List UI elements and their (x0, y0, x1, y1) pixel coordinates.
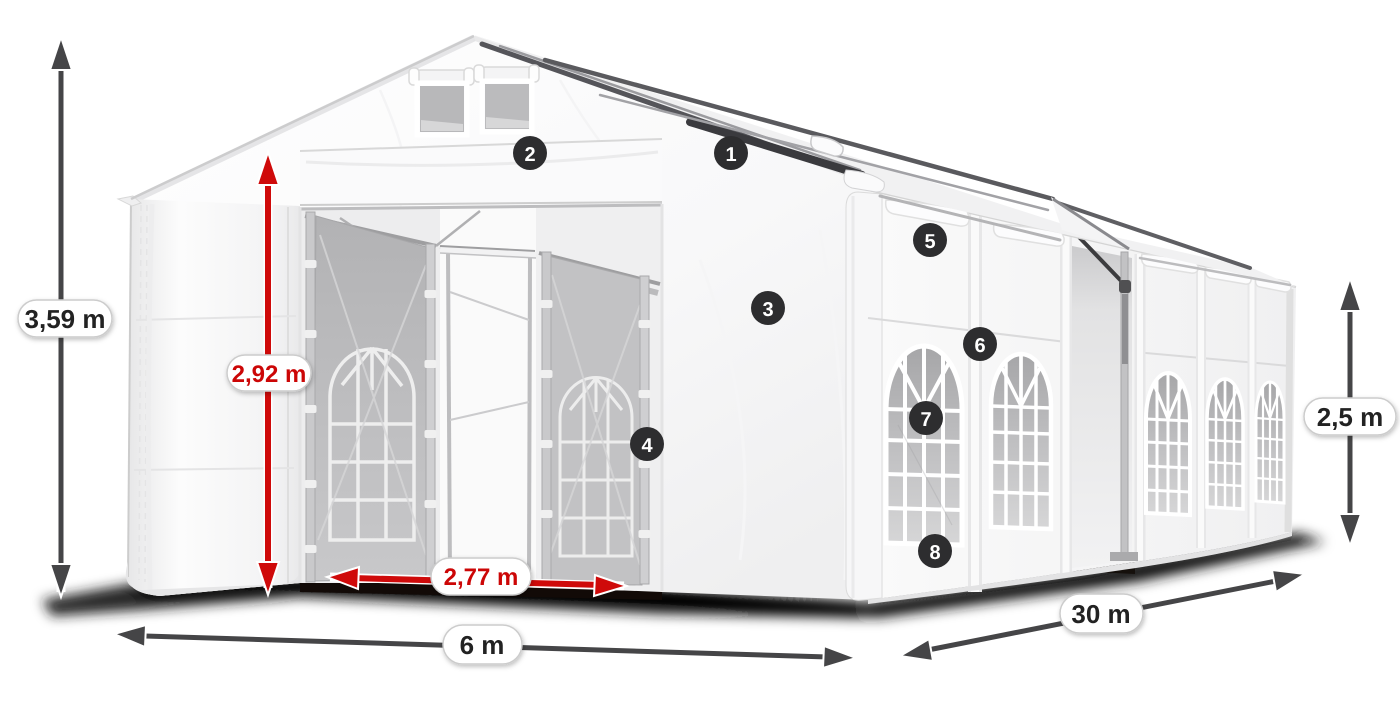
svg-text:7: 7 (920, 409, 931, 431)
svg-text:2,92 m: 2,92 m (232, 361, 307, 388)
svg-text:8: 8 (929, 542, 940, 564)
svg-text:2: 2 (524, 144, 535, 166)
svg-text:1: 1 (725, 144, 736, 166)
svg-text:30 m: 30 m (1071, 599, 1130, 629)
svg-text:3,59 m: 3,59 m (25, 304, 106, 334)
svg-text:2,5 m: 2,5 m (1317, 402, 1384, 432)
svg-text:2,77 m: 2,77 m (444, 564, 519, 591)
svg-text:6 m: 6 m (460, 630, 505, 660)
svg-text:4: 4 (641, 435, 653, 457)
svg-text:5: 5 (924, 231, 935, 253)
svg-text:3: 3 (762, 299, 773, 321)
svg-text:6: 6 (974, 335, 985, 357)
